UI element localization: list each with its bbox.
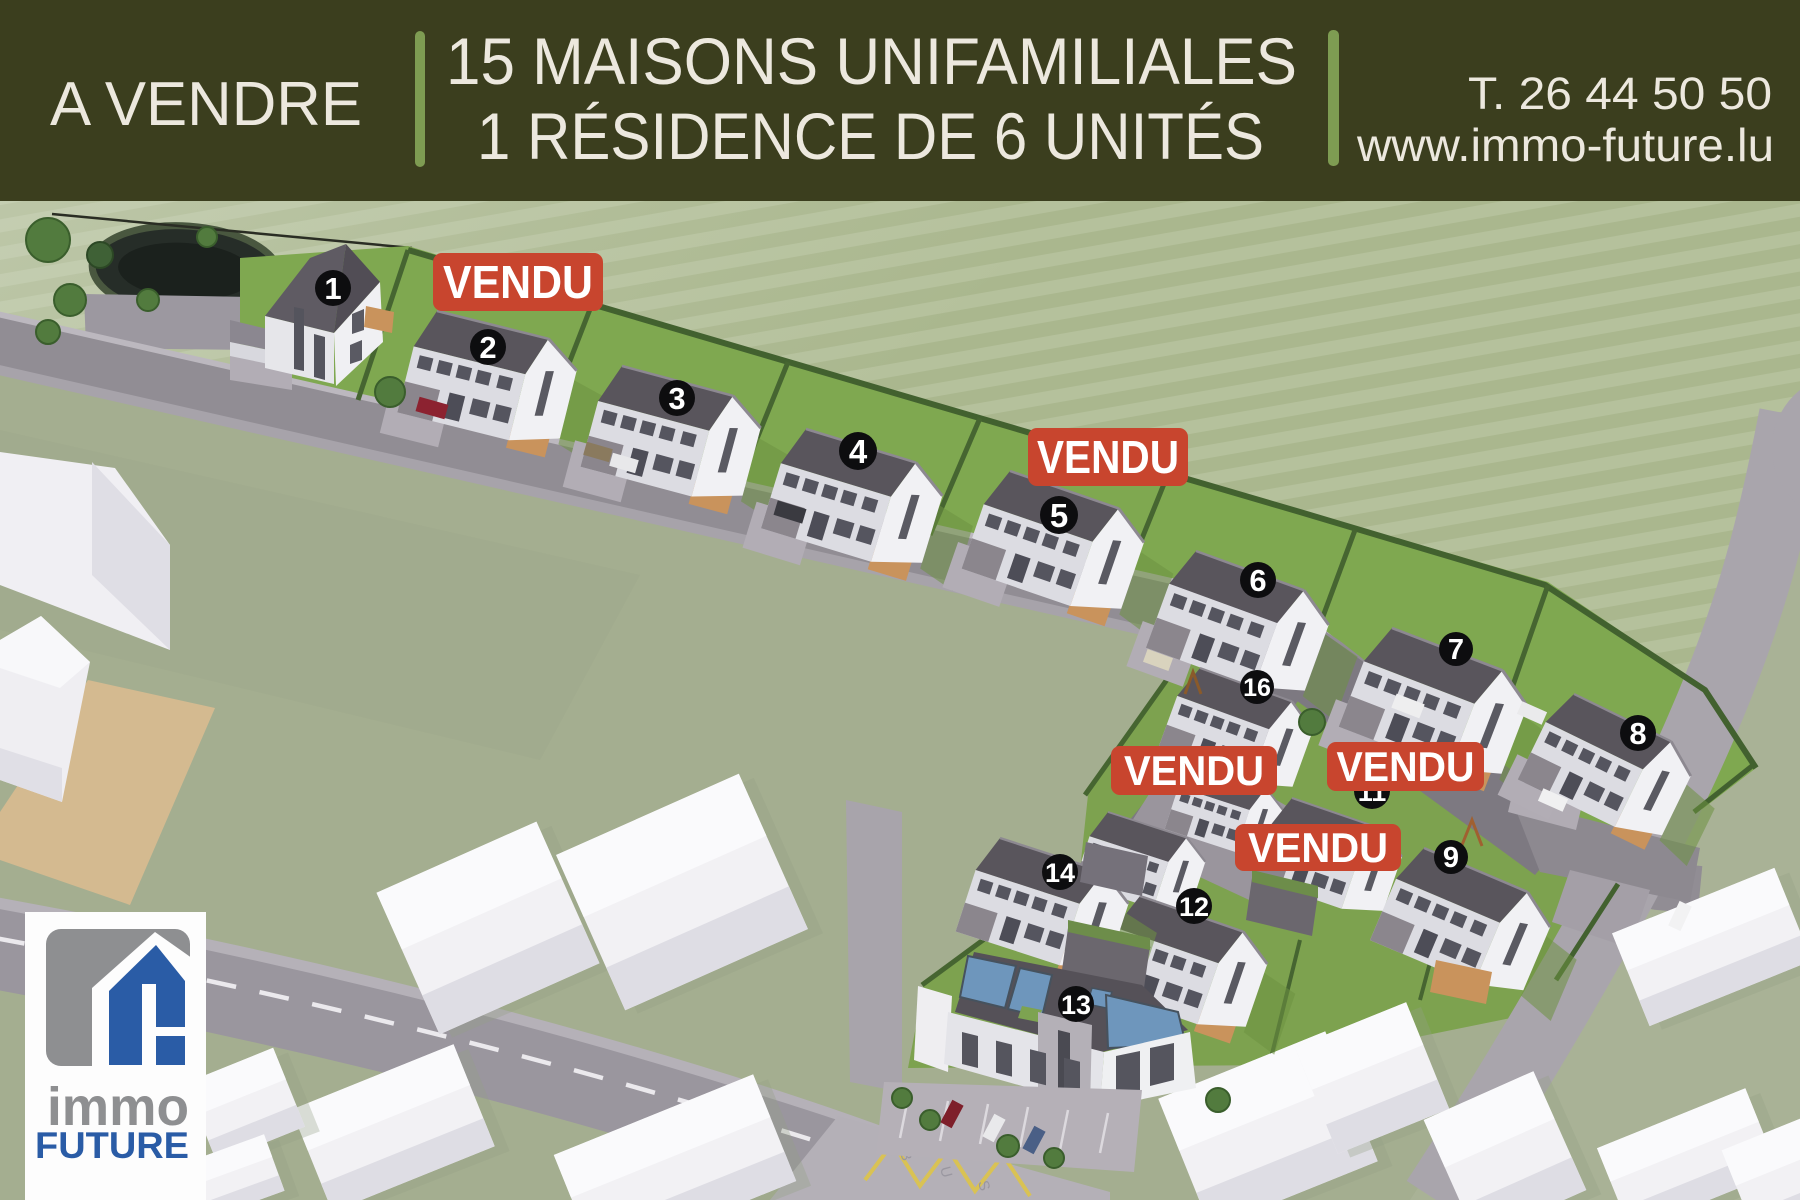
svg-text:FUTURE: FUTURE [35,1125,189,1166]
svg-text:T. 26 44 50 50: T. 26 44 50 50 [1468,68,1772,119]
svg-text:12: 12 [1179,892,1209,922]
svg-text:7: 7 [1448,634,1464,666]
svg-text:3: 3 [668,381,685,416]
svg-text:9: 9 [1443,842,1459,874]
svg-text:5: 5 [1050,497,1068,534]
svg-text:1: 1 [324,271,341,306]
svg-text:VENDU: VENDU [1337,743,1475,790]
svg-text:14: 14 [1045,858,1075,888]
svg-text:www.immo-future.lu: www.immo-future.lu [1356,119,1774,171]
svg-text:VENDU: VENDU [443,256,593,308]
svg-text:16: 16 [1243,674,1271,702]
svg-text:VENDU: VENDU [1248,824,1388,871]
svg-text:A VENDRE: A VENDRE [50,70,362,139]
svg-text:VENDU: VENDU [1037,431,1179,483]
svg-text:VENDU: VENDU [1124,747,1264,794]
svg-text:6: 6 [1249,563,1266,598]
svg-text:4: 4 [849,433,868,470]
svg-text:1 RÉSIDENCE DE 6 UNITÉS: 1 RÉSIDENCE DE 6 UNITÉS [477,99,1264,173]
svg-text:15 MAISONS UNIFAMILIALES: 15 MAISONS UNIFAMILIALES [446,24,1297,98]
svg-text:2: 2 [479,330,496,365]
svg-text:13: 13 [1061,990,1091,1020]
svg-text:8: 8 [1629,716,1646,751]
